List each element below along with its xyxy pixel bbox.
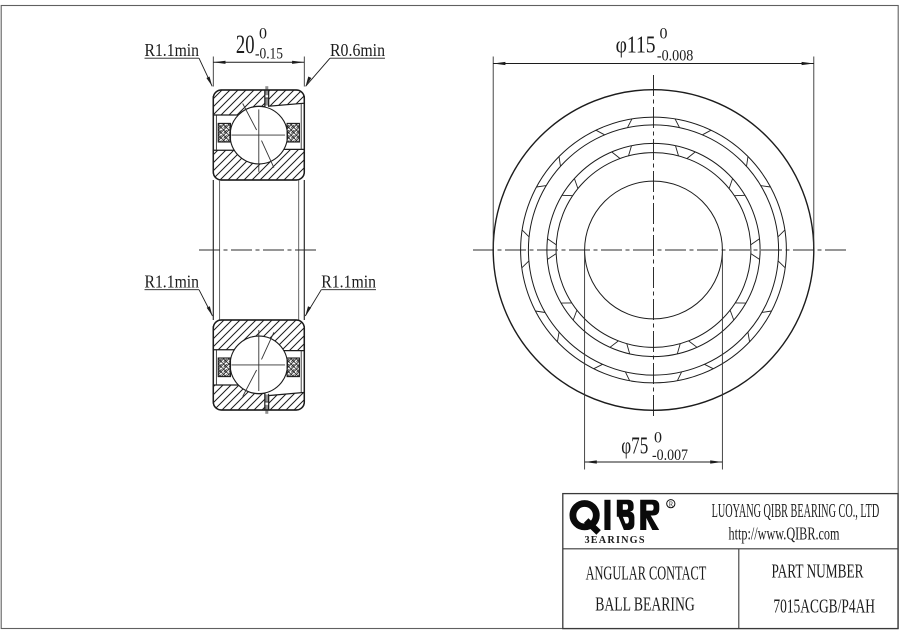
svg-text:φ115: φ115 (616, 33, 656, 59)
svg-text:0: 0 (259, 26, 267, 43)
svg-text:20: 20 (236, 30, 255, 59)
svg-text:LUOYANG QIBR BEARING CO., LTD: LUOYANG QIBR BEARING CO., LTD (712, 501, 880, 522)
svg-text:-0.15: -0.15 (255, 45, 283, 62)
svg-text:R1.1min: R1.1min (145, 272, 200, 292)
svg-text:0: 0 (660, 25, 668, 42)
svg-text:φ75: φ75 (621, 434, 648, 460)
svg-text:R1.1min: R1.1min (321, 272, 376, 292)
svg-text:-0.008: -0.008 (657, 48, 693, 65)
svg-text:-0.007: -0.007 (652, 447, 688, 464)
svg-text:7015ACGB/P4AH: 7015ACGB/P4AH (773, 596, 875, 618)
svg-text:R: R (669, 501, 674, 508)
svg-text:PART NUMBER: PART NUMBER (772, 561, 864, 583)
svg-text:R0.6min: R0.6min (330, 40, 385, 60)
svg-text:R1.1min: R1.1min (145, 40, 200, 60)
svg-text:0: 0 (654, 430, 662, 447)
svg-text:3EARINGS: 3EARINGS (585, 535, 645, 546)
svg-text:ANGULAR CONTACT: ANGULAR CONTACT (586, 563, 707, 585)
svg-text:BALL BEARING: BALL BEARING (595, 593, 695, 615)
svg-text:http://www.QIBR.com: http://www.QIBR.com (729, 523, 840, 543)
